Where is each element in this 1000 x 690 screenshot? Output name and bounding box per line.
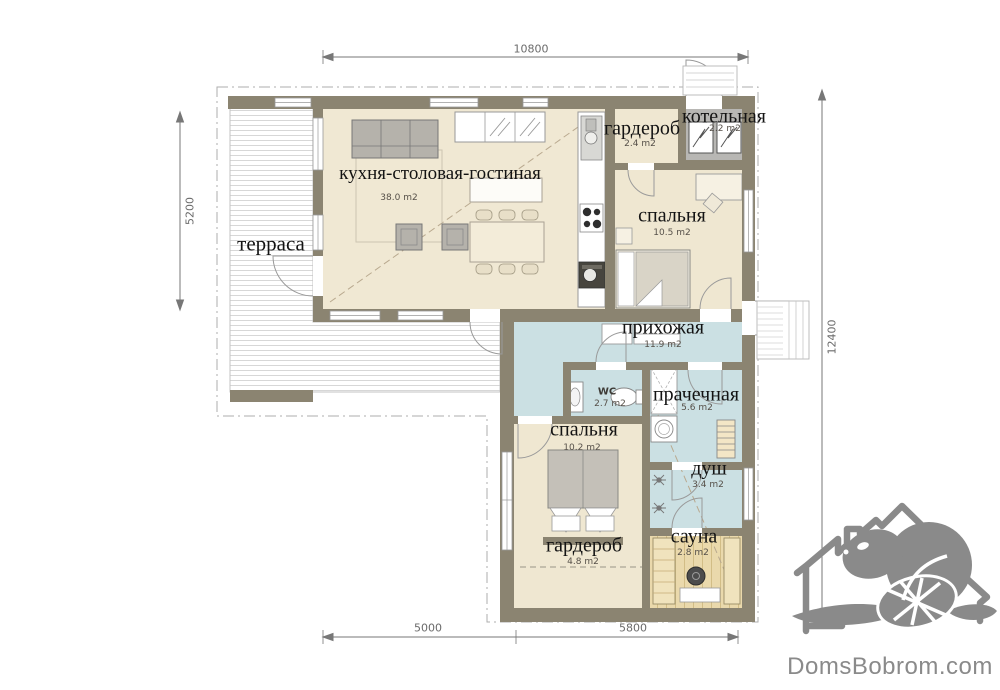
floor-plan-drawing xyxy=(0,0,1000,690)
entrance-porch xyxy=(683,66,737,95)
desk xyxy=(696,174,742,200)
sauna-step xyxy=(680,588,720,602)
dimension-line-left xyxy=(177,112,184,310)
wall-cabinets xyxy=(455,112,545,142)
room-label-hallway: прихожая xyxy=(622,317,704,340)
room-area-kitchen-living: 38.0 m2 xyxy=(380,193,417,203)
room-label-wardrobe-top: гардероб xyxy=(604,118,680,141)
beaver-icon xyxy=(792,522,997,636)
dimension-bottom-right: 5800 xyxy=(619,622,647,635)
stove-icon xyxy=(580,204,603,232)
room-label-shower: душ xyxy=(691,458,727,481)
room-area-bedroom-1: 10.5 m2 xyxy=(653,228,690,238)
dimension-bottom-left: 5000 xyxy=(414,622,442,635)
room-label-terrace: терраса xyxy=(237,232,305,257)
dimension-left: 5200 xyxy=(184,197,197,225)
dining-table xyxy=(470,222,544,262)
oven-icon xyxy=(579,262,605,288)
beaver-nose xyxy=(844,550,849,555)
towel-dryer-icon xyxy=(717,420,735,458)
room-area-wardrobe-top: 2.4 m2 xyxy=(624,139,656,149)
washing-machine-icon xyxy=(651,416,677,442)
room-label-sauna: сауна xyxy=(671,526,718,549)
room-area-bedroom-2: 10.2 m2 xyxy=(563,443,600,453)
room-area-laundry: 5.6 m2 xyxy=(681,403,713,413)
room-label-bedroom-1: спальня xyxy=(638,205,706,228)
dimension-line-bottom xyxy=(323,630,738,644)
floor-plan-canvas: терраса кухня-столовая-гостиная гардероб… xyxy=(0,0,1000,690)
room-label-kitchen-living: кухня-столовая-гостиная xyxy=(339,163,541,185)
room-area-sauna: 2.8 m2 xyxy=(677,548,709,558)
room-area-wardrobe-bottom: 4.8 m2 xyxy=(567,557,599,567)
dimension-top: 10800 xyxy=(514,43,549,56)
room-label-bedroom-2: спальня xyxy=(550,419,618,442)
kitchen-counter xyxy=(578,112,605,307)
watermark-site-text: DomsBobrom.com xyxy=(787,653,993,681)
watermark-logo xyxy=(792,506,997,636)
side-porch xyxy=(757,301,809,359)
dimension-right: 12400 xyxy=(826,320,839,355)
room-area-shower: 3.4 m2 xyxy=(692,480,724,490)
room-area-hallway: 11.9 m2 xyxy=(644,340,681,350)
room-label-wardrobe-bottom: гардероб xyxy=(546,535,622,558)
dimension-line-right xyxy=(819,90,826,620)
room-area-boiler: 2.2 m2 xyxy=(709,124,741,134)
sauna-stove-icon xyxy=(687,567,705,585)
room-label-wc: WC xyxy=(598,387,616,398)
room-area-wc: 2.7 m2 xyxy=(594,399,626,409)
